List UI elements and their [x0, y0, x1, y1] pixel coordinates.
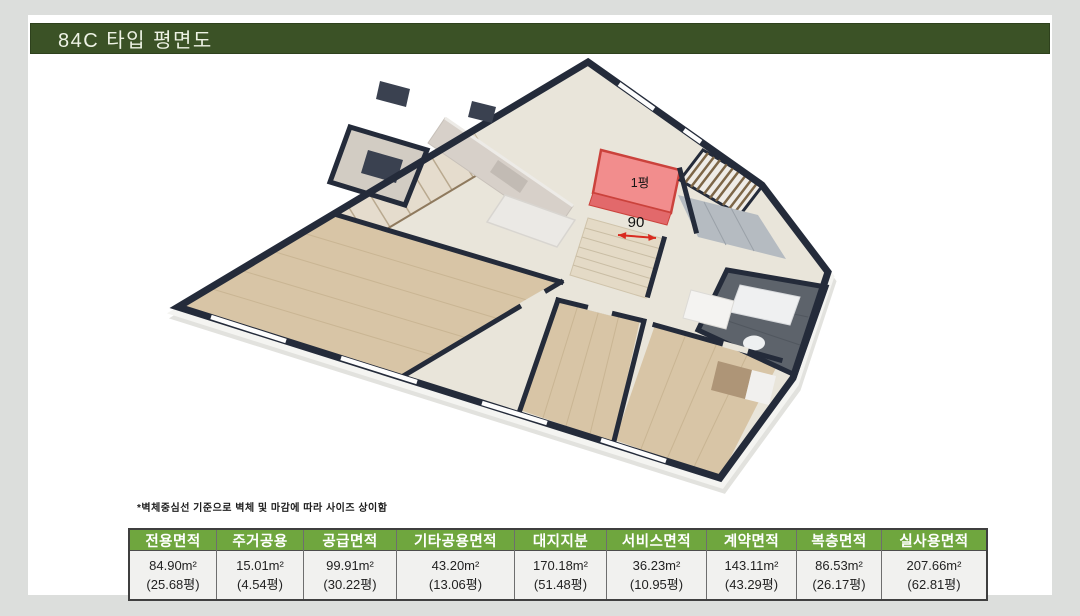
content-card: 84C 타입 평면도 [28, 15, 1052, 595]
col-value-pyeong: (25.68평) [146, 575, 199, 595]
col-value-pyeong: (62.81평) [907, 575, 960, 595]
col-value-m2: 170.18m² [533, 556, 588, 576]
col-value-pyeong: (51.48평) [534, 575, 587, 595]
col-value-m2: 84.90m² [149, 556, 197, 576]
col-header: 복층면적 [797, 530, 881, 551]
col-header: 기타공용면적 [397, 530, 514, 551]
col-header: 전용면적 [130, 530, 216, 551]
col-value-pyeong: (30.22평) [323, 575, 376, 595]
col-header: 주거공용 [217, 530, 303, 551]
table-col-other-common-area: 기타공용면적 43.20m²(13.06평) [397, 530, 515, 599]
dimension-90-label: 90 [628, 214, 645, 231]
col-header: 대지지분 [515, 530, 606, 551]
table-col-duplex-area: 복층면적 86.53m²(26.17평) [797, 530, 882, 599]
col-value-m2: 86.53m² [815, 556, 863, 576]
col-header: 실사용면적 [882, 530, 986, 551]
floor-plan-rendering: 1평 90 [28, 55, 1052, 517]
col-header: 공급면적 [304, 530, 396, 551]
table-col-land-share: 대지지분 170.18m²(51.48평) [515, 530, 607, 599]
col-value-pyeong: (4.54평) [237, 575, 283, 595]
area-1pyeong-label: 1평 [631, 176, 649, 190]
col-value-m2: 207.66m² [907, 556, 962, 576]
col-value-pyeong: (26.17평) [812, 575, 865, 595]
table-col-service-area: 서비스면적 36.23m²(10.95평) [607, 530, 707, 599]
footnote: *벽체중심선 기준으로 벽체 및 마감에 따라 사이즈 상이함 [137, 499, 387, 514]
table-col-exclusive-area: 전용면적 84.90m²(25.68평) [130, 530, 217, 599]
floor-plan-area: 1평 90 [28, 55, 1052, 517]
col-header: 계약면적 [707, 530, 796, 551]
col-value-m2: 99.91m² [326, 556, 374, 576]
table-col-actual-use-area: 실사용면적 207.66m²(62.81평) [882, 530, 986, 599]
table-col-supply-area: 공급면적 99.91m²(30.22평) [304, 530, 397, 599]
area-table: 전용면적 84.90m²(25.68평) 주거공용 15.01m²(4.54평)… [128, 528, 988, 601]
ac-panels [376, 81, 496, 123]
col-value-m2: 43.20m² [432, 556, 480, 576]
col-value-m2: 15.01m² [236, 556, 284, 576]
table-col-contract-area: 계약면적 143.11m²(43.29평) [707, 530, 797, 599]
col-value-m2: 36.23m² [633, 556, 681, 576]
col-value-m2: 143.11m² [725, 556, 779, 576]
slide-background: { "title": "84C 타입 평면도", "plan": { "area… [0, 0, 1080, 616]
page-title: 84C 타입 평면도 [58, 24, 213, 53]
col-value-pyeong: (13.06평) [429, 575, 482, 595]
col-value-pyeong: (10.95평) [630, 575, 683, 595]
col-header: 서비스면적 [607, 530, 706, 551]
title-bar: 84C 타입 평면도 [30, 23, 1050, 54]
col-value-pyeong: (43.29평) [725, 575, 778, 595]
table-col-residential-common: 주거공용 15.01m²(4.54평) [217, 530, 304, 599]
